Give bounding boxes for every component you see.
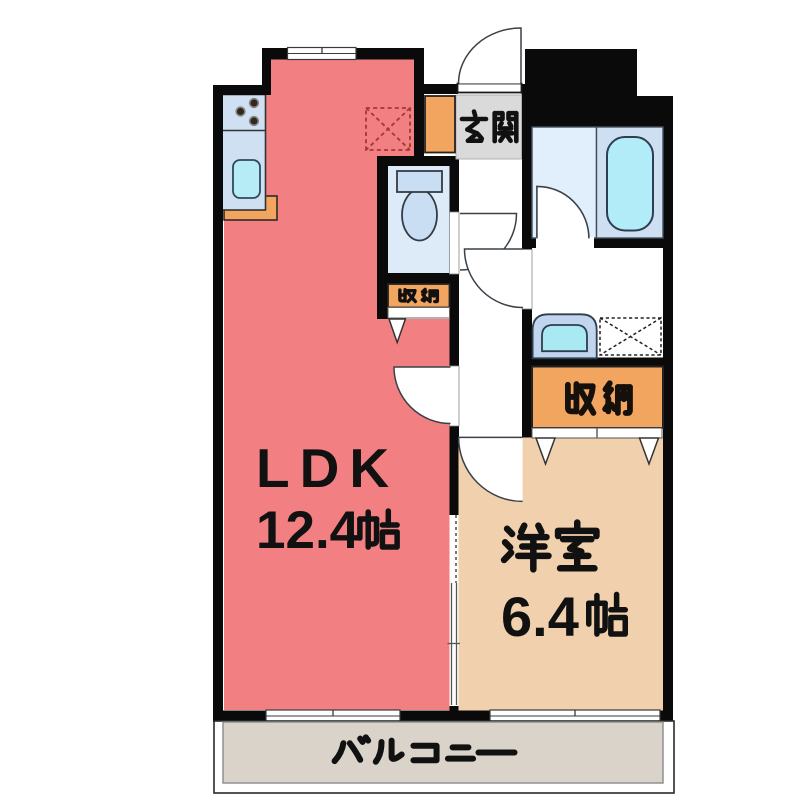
- svg-text:12.4: 12.4: [256, 501, 360, 560]
- svg-text:6.4: 6.4: [501, 585, 579, 648]
- svg-text:LDK: LDK: [256, 437, 399, 499]
